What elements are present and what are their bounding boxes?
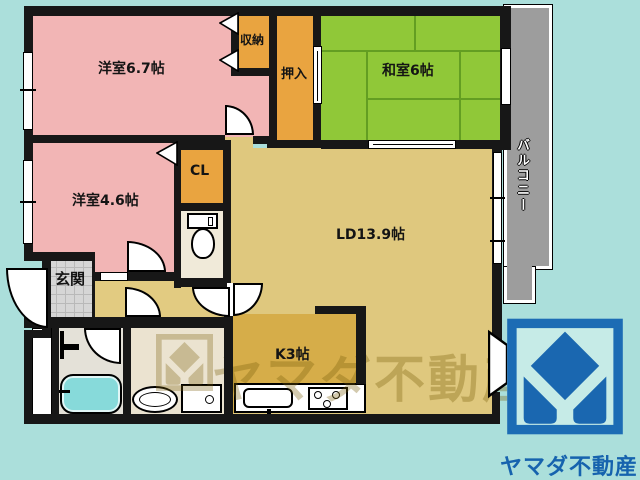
window <box>493 152 502 264</box>
entrance-floor <box>47 258 92 326</box>
wall <box>269 6 277 148</box>
sliding-door <box>313 46 322 104</box>
wall <box>24 252 95 261</box>
wall <box>174 203 231 211</box>
window-tick <box>490 240 505 242</box>
room-label-ld: LD13.9帖 <box>336 228 405 243</box>
room-label-cl: CL <box>190 164 209 179</box>
toilet-icon <box>187 213 218 229</box>
balcony-label: バルコニー <box>512 138 531 213</box>
doorway <box>100 272 128 281</box>
balcony-floor <box>507 8 549 266</box>
wall <box>223 140 231 286</box>
wall <box>24 317 233 328</box>
window-tick <box>20 201 36 203</box>
floorplan: バルコニー ヤマダ不動産 <box>0 0 640 480</box>
tatami-line <box>321 50 501 52</box>
room-label-western46: 洋室4.6帖 <box>72 194 139 209</box>
wall <box>174 278 231 287</box>
folding-door-icon <box>219 12 239 35</box>
room-label-shuno: 収納 <box>240 34 264 47</box>
tatami-line <box>414 16 416 50</box>
toilet-bowl-icon <box>191 228 215 259</box>
room-label-western67: 洋室6.7帖 <box>98 62 165 77</box>
tatami-line <box>459 50 461 141</box>
wall <box>24 330 32 424</box>
balcony-floor-lower <box>507 264 532 300</box>
window <box>23 52 33 130</box>
window-tick <box>490 197 505 199</box>
folding-door-icon <box>219 49 239 72</box>
room-label-genkan: 玄関 <box>55 271 85 288</box>
door-swing-entrance <box>6 268 48 328</box>
sliding-door <box>368 140 456 149</box>
wall <box>52 328 59 417</box>
cl-door-icon <box>156 141 178 166</box>
company-name: ヤマダ不動産 <box>500 449 638 480</box>
bath-faucet-icon <box>58 390 70 393</box>
tatami-line <box>366 50 368 141</box>
watermark-logo <box>156 334 213 391</box>
window-tick <box>20 89 36 91</box>
wall <box>24 6 507 16</box>
shower-arm-icon <box>64 344 79 350</box>
wall <box>356 306 366 384</box>
company-logo <box>506 313 624 440</box>
window <box>501 48 511 105</box>
room-label-kitchen: K3帖 <box>275 348 310 363</box>
wall <box>123 328 131 417</box>
room-label-japanese: 和室6帖 <box>382 64 434 79</box>
service-space <box>32 328 52 416</box>
wall <box>224 316 233 416</box>
room-label-oshiire: 押入 <box>281 68 307 82</box>
wall <box>24 414 500 424</box>
bathtub-icon <box>60 374 122 414</box>
tatami-line <box>366 98 501 100</box>
